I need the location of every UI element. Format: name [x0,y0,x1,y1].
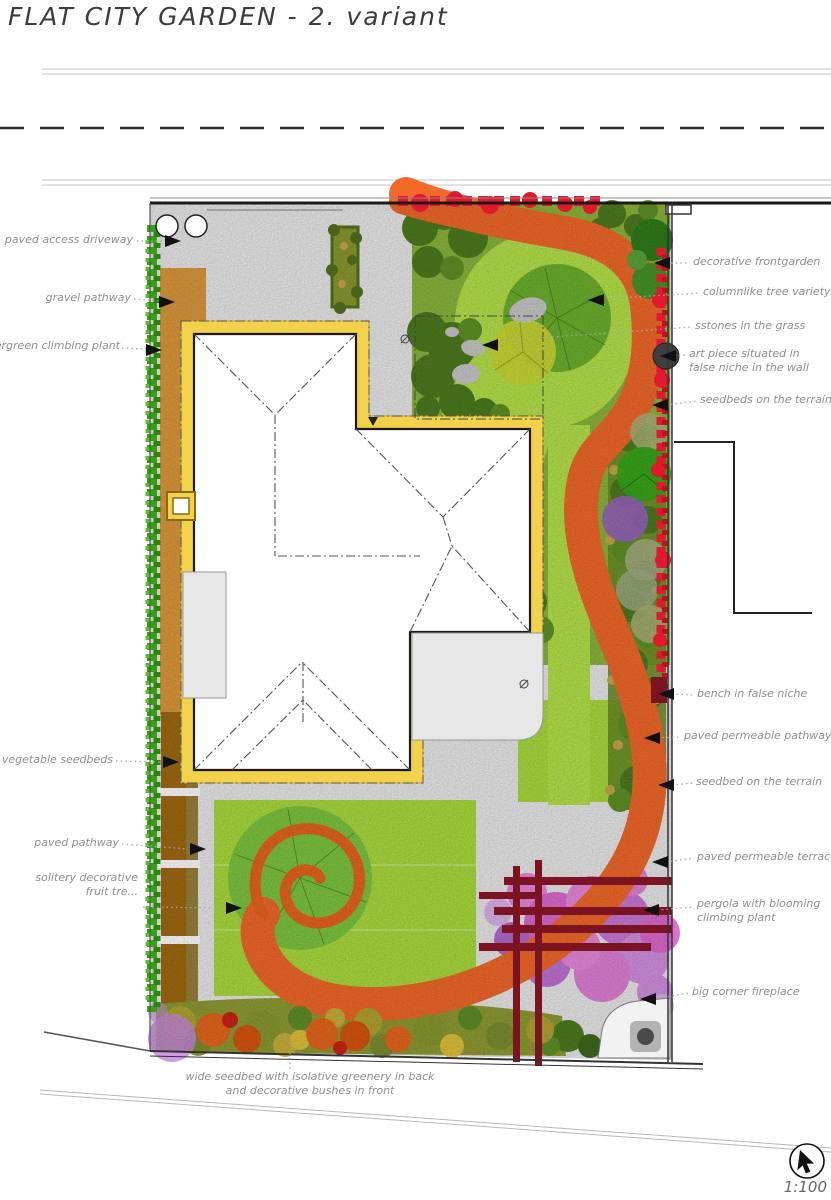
left-terrace [183,572,226,698]
label-seedbed-on-terrain: seedbed on the terrain [696,775,822,789]
label-paved-permeable-terrace: paved permeable terrace [697,850,831,864]
label-stones-in-the-grass: sstones in the grass [695,319,805,333]
label-paved-pathway: paved pathway [34,836,119,850]
label-paved-access-driveway: paved access driveway [5,233,133,247]
label-gravel-pathway: gravel pathway [46,291,131,305]
label-seedbeds-on-terrain: seedbeds on the terrain [700,393,831,407]
label-paved-permeable-pathway: paved permeable pathway [684,729,831,743]
page-title: FLAT CITY GARDEN - 2. variant [8,2,449,31]
bench-in-niche [651,677,667,703]
label-big-corner-fireplace: big corner fireplace [692,985,800,999]
label-evergreen-climbing-plant: evergreen climbing plant [0,339,120,353]
mouse-cursor-icon [788,1142,826,1180]
label-solitary-fruit-tree: solitery decorativefruit tre... [35,871,138,900]
garden-plan-drawing [0,0,831,1200]
label-bench-in-false-niche: bench in false niche [697,687,807,701]
scale-text: 1:100 [784,1178,827,1196]
label-art-piece: art piece situated infalse niche in the … [689,347,809,376]
label-vegetable-seedbeds: vegetable seedbeds [2,753,113,767]
label-decorative-frontgarden: decorative frontgarden [693,255,820,269]
label-columnlike-tree-variety: columnlike tree variety [703,285,831,299]
label-wide-seedbed: wide seedbed with isolative greenery in … [130,1070,490,1099]
back-terrace [412,633,543,740]
garden-plan-page: FLAT CITY GARDEN - 2. variant paved acce… [0,0,831,1200]
neighbor-building-outline [674,442,812,613]
label-pergola: pergola with bloomingclimbing plant [697,897,820,926]
